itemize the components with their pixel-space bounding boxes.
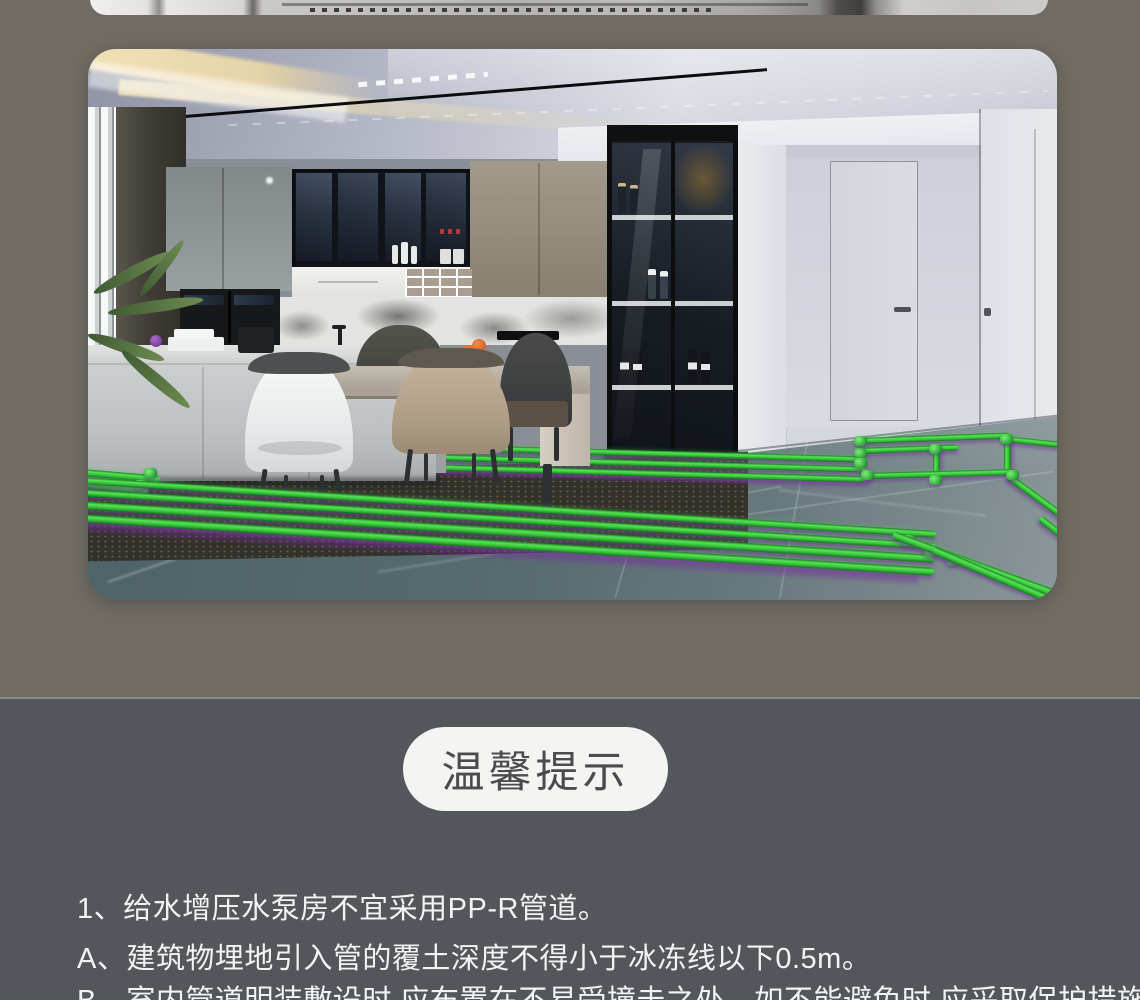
beige-chair-top-band: [398, 348, 504, 368]
hidden-door-handle: [984, 308, 991, 316]
wine-bottle: [701, 351, 710, 383]
wine-bottle: [648, 269, 656, 299]
tips-badge-label: 温馨提示: [442, 738, 630, 800]
glass-pane: [338, 173, 378, 261]
red-label-dots: [440, 229, 464, 234]
door-handle: [894, 307, 911, 312]
white-canister: [440, 249, 451, 264]
pipe-fitting: [861, 470, 874, 480]
upper-cabinet-seam: [222, 168, 224, 290]
right-wall-panel: [981, 109, 1057, 459]
pipe-fitting: [854, 436, 867, 446]
pipe-fitting: [144, 468, 157, 478]
table-leg: [543, 464, 552, 512]
note-line-3: B、室内管道明装敷设时,应布置在不易受撞击之处。如不能避免时,应采取保护措施。: [77, 977, 1140, 1000]
cabinet-frame-column: [607, 125, 612, 457]
purple-ball-deco: [150, 335, 162, 347]
wine-bottle: [688, 349, 697, 383]
pipe-fitting: [854, 448, 867, 458]
cabinet-frame-column: [671, 125, 675, 457]
white-bottle: [401, 242, 408, 264]
white-tray: [168, 337, 224, 351]
faucet-spout: [332, 325, 346, 329]
panel-shadow-band: [282, 3, 809, 6]
door: [830, 161, 918, 421]
product-detail-page: 温馨提示 1、给水增压水泵房不宜采用PP-R管道。 A、建筑物埋地引入管的覆土深…: [0, 0, 1140, 1000]
chair-leg: [424, 453, 428, 481]
island-seam: [202, 367, 204, 479]
pipe-fitting: [1000, 434, 1013, 444]
upper-cabinet-gray: [166, 167, 292, 291]
drawer-handle-line: [318, 281, 378, 283]
previous-section-image-edge: [90, 0, 1048, 15]
white-bottle: [411, 246, 417, 264]
glass-pane: [426, 173, 466, 261]
pipe-fitting: [1006, 470, 1019, 480]
wine-bottle: [618, 183, 626, 213]
tips-badge: 温馨提示: [403, 727, 668, 811]
right-wall-seam: [1034, 129, 1036, 459]
white-chair-seat-shadow: [258, 441, 342, 455]
chair-seat: [504, 401, 568, 427]
note-line-2: A、建筑物埋地引入管的覆土深度不得小于冰冻线以下0.5m。: [77, 935, 871, 977]
tips-section: 温馨提示 1、给水增压水泵房不宜采用PP-R管道。 A、建筑物埋地引入管的覆土深…: [0, 699, 1140, 1000]
pipe-fitting: [854, 458, 867, 468]
cabinet-top-band: [607, 125, 738, 141]
pipe-fitting: [929, 475, 942, 485]
white-canister: [453, 249, 464, 264]
oven-divider: [228, 291, 231, 343]
chair-leg: [554, 427, 559, 461]
cabinet-bronze-glow: [674, 145, 732, 213]
wine-cube-rack: [405, 269, 472, 298]
oven-screen: [234, 295, 274, 305]
cabinet-frame-column: [733, 125, 738, 457]
spot-reflection: [266, 177, 273, 184]
coffee-machine: [238, 327, 274, 353]
kitchen-render-image: [88, 49, 1057, 600]
note-line-1: 1、给水增压水泵房不宜采用PP-R管道。: [77, 885, 607, 927]
chair-leg: [472, 453, 476, 481]
white-chair-top-band: [248, 352, 350, 374]
glass-pane: [296, 173, 332, 261]
white-box: [174, 329, 214, 339]
white-bottle: [392, 245, 398, 264]
vent-dots: [310, 8, 712, 12]
taupe-cabinet-seam: [538, 163, 540, 295]
wine-bottle: [660, 271, 668, 299]
pipe-fitting: [929, 444, 942, 454]
